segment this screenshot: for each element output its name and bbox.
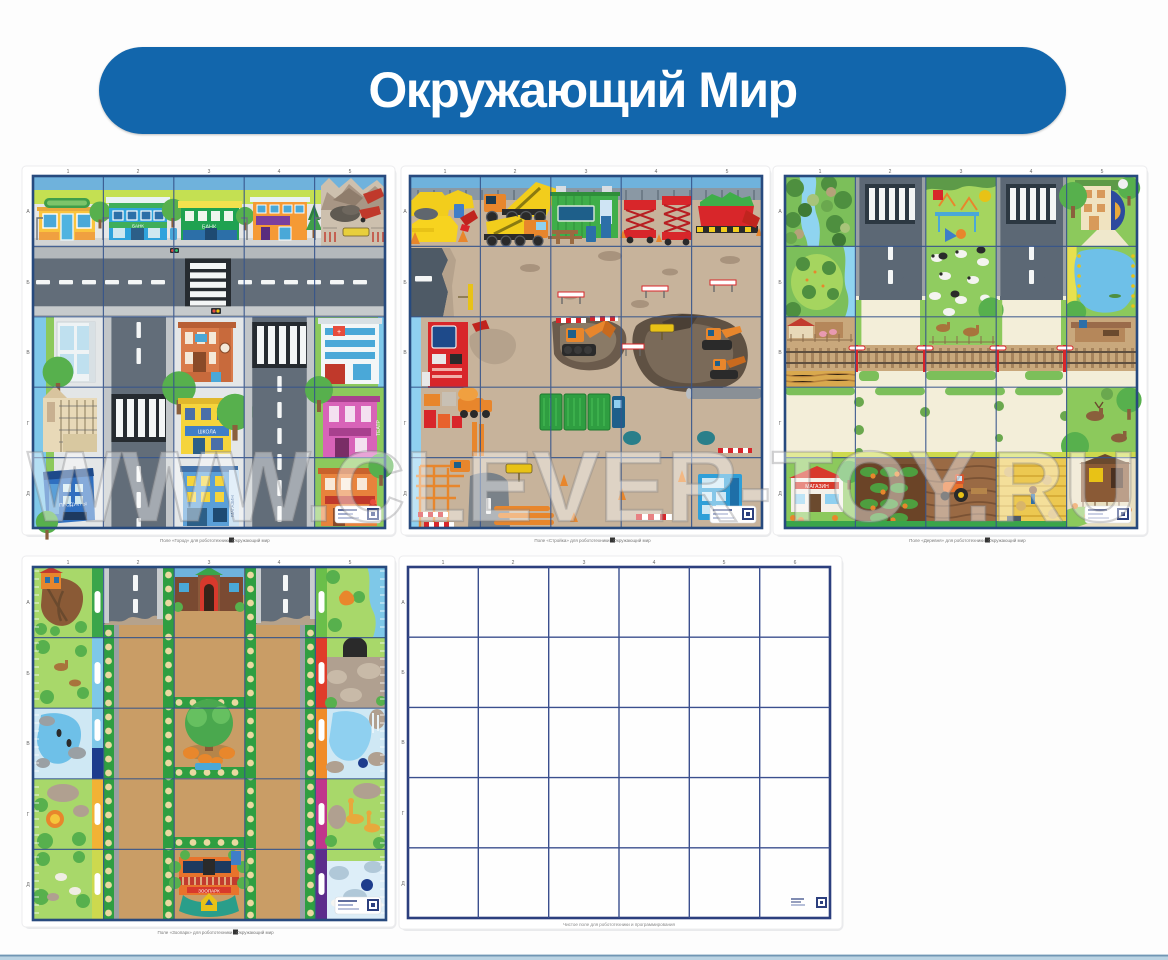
svg-text:2: 2 — [514, 169, 517, 175]
svg-text:3: 3 — [585, 169, 588, 175]
svg-text:5: 5 — [349, 169, 352, 175]
svg-text:1: 1 — [67, 169, 70, 175]
svg-text:ЗООПАРК: ЗООПАРК — [198, 889, 220, 894]
svg-text:БАНК: БАНК — [132, 224, 144, 229]
svg-text:4: 4 — [278, 560, 281, 566]
svg-text:1: 1 — [444, 169, 447, 175]
svg-text:+: + — [337, 329, 341, 336]
svg-text:3: 3 — [583, 560, 586, 566]
svg-text:2: 2 — [137, 169, 140, 175]
svg-text:3: 3 — [208, 560, 211, 566]
svg-text:2: 2 — [512, 560, 515, 566]
svg-text:Г: Г — [27, 421, 30, 427]
svg-text:2: 2 — [889, 169, 892, 175]
svg-text:2: 2 — [137, 560, 140, 566]
svg-text:Г: Г — [404, 421, 407, 427]
svg-text:WWW.CLEVER-TOY.RU: WWW.CLEVER-TOY.RU — [27, 431, 1136, 543]
svg-text:Окружающий мир: Окружающий мир — [236, 929, 274, 935]
svg-text:Г: Г — [27, 812, 30, 818]
svg-text:Г: Г — [779, 421, 782, 427]
svg-text:4: 4 — [655, 169, 658, 175]
svg-text:1: 1 — [819, 169, 822, 175]
svg-text:5: 5 — [1101, 169, 1104, 175]
svg-text:4: 4 — [278, 169, 281, 175]
svg-text:1: 1 — [442, 560, 445, 566]
svg-text:4: 4 — [1030, 169, 1033, 175]
svg-text:3: 3 — [208, 169, 211, 175]
svg-text:4: 4 — [653, 560, 656, 566]
svg-text:Г: Г — [402, 811, 405, 817]
svg-text:5: 5 — [723, 560, 726, 566]
svg-text:5: 5 — [726, 169, 729, 175]
svg-text:Поле «Зоопарк» для робототехни: Поле «Зоопарк» для робототехники — [158, 930, 233, 935]
svg-text:6: 6 — [794, 560, 797, 566]
svg-text:3: 3 — [960, 169, 963, 175]
svg-text:Чистое поле для робототехники: Чистое поле для робототехники и программ… — [563, 922, 675, 927]
svg-text:5: 5 — [349, 560, 352, 566]
svg-text:1: 1 — [67, 560, 70, 566]
